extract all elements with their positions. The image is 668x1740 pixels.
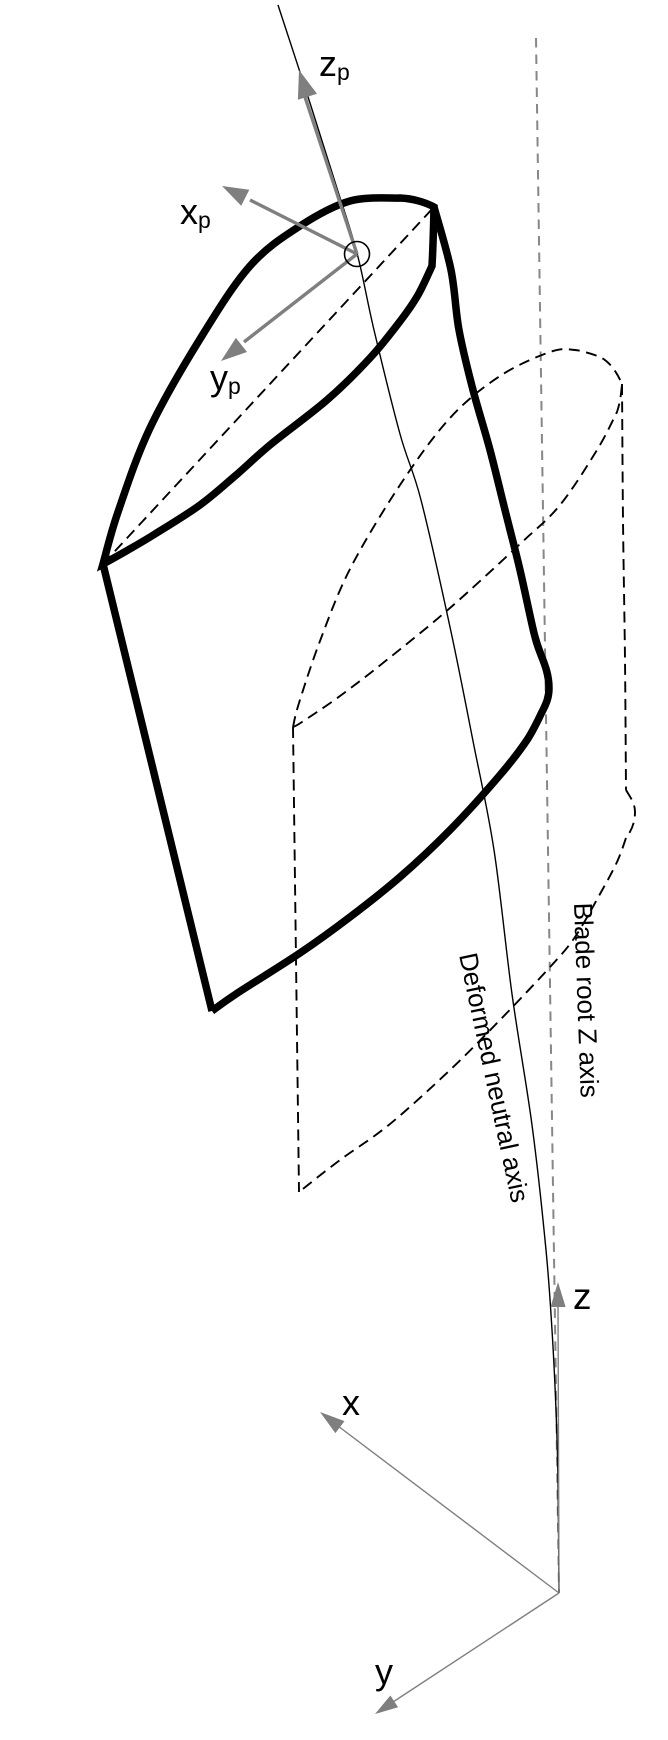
svg-text:y: y xyxy=(375,1651,393,1692)
svg-text:x: x xyxy=(342,1382,360,1423)
svg-text:z: z xyxy=(573,1276,592,1317)
